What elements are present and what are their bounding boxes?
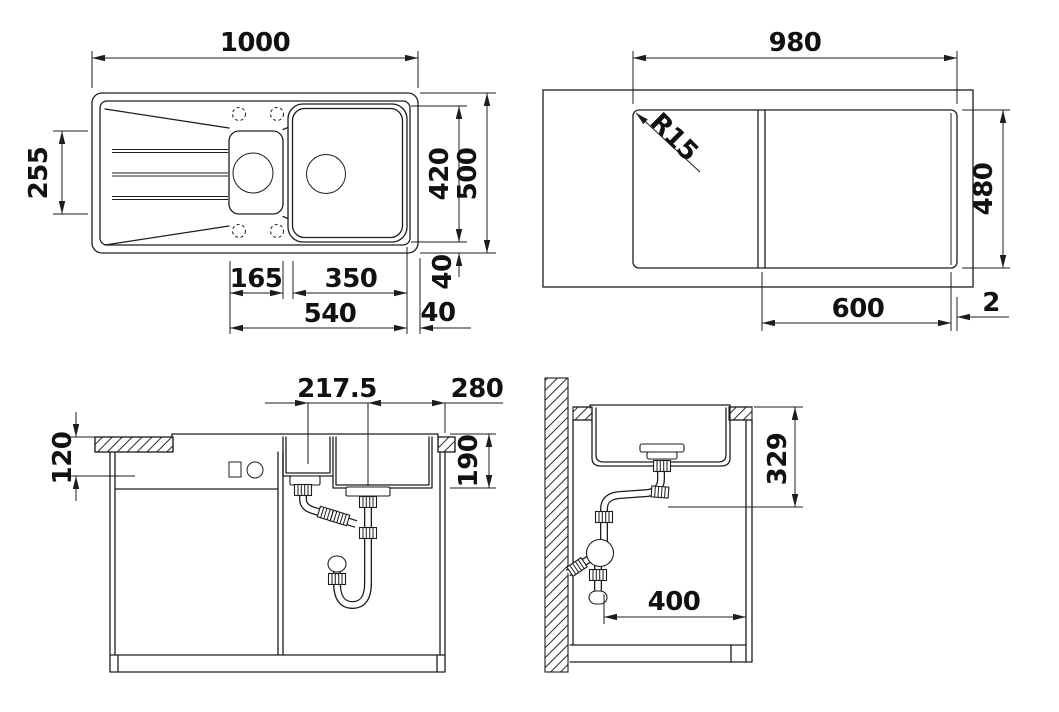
cabinet-switch-symbol bbox=[229, 462, 241, 477]
dim-label-480: 480 bbox=[969, 163, 999, 216]
dim-label-500: 500 bbox=[453, 148, 483, 201]
half-bowl-drain bbox=[233, 153, 273, 193]
strainer-flange bbox=[640, 444, 684, 452]
dim-label-255: 255 bbox=[24, 147, 54, 200]
trap-cap bbox=[328, 556, 346, 572]
sink-technical-drawing: 1000 255 420 500 40 165 350 540 40 bbox=[0, 0, 1059, 712]
cutout-divider bbox=[758, 110, 765, 268]
front-section-view: 217.5 280 120 190 bbox=[48, 374, 503, 672]
top-view-dimensions: 1000 255 420 500 40 165 350 540 40 bbox=[24, 28, 496, 334]
side-plumbing bbox=[567, 444, 684, 604]
dim-label-165: 165 bbox=[230, 264, 283, 294]
dim-label-540: 540 bbox=[304, 299, 357, 329]
countertop-side bbox=[573, 405, 752, 420]
dim-label-600: 600 bbox=[832, 294, 885, 324]
front-plumbing bbox=[290, 476, 390, 605]
strainer-body bbox=[647, 452, 677, 459]
drainboard-grooves bbox=[112, 150, 228, 200]
side-dimensions: 329 400 bbox=[604, 407, 803, 624]
side-section-view: 329 400 bbox=[545, 378, 803, 672]
cabinet-socket-symbol bbox=[247, 462, 263, 478]
half-bowl-strainer bbox=[290, 476, 320, 485]
technical-drawing-page: 1000 255 420 500 40 165 350 540 40 bbox=[0, 0, 1059, 712]
main-bowl-strainer bbox=[346, 487, 390, 496]
dim-label-280: 280 bbox=[451, 374, 504, 404]
dim-label-1000: 1000 bbox=[220, 28, 290, 58]
dim-label-420: 420 bbox=[425, 148, 455, 201]
dim-label-217-5: 217.5 bbox=[297, 374, 377, 404]
dim-label-400: 400 bbox=[648, 587, 701, 617]
dim-label-350: 350 bbox=[325, 264, 378, 294]
dim-label-r15: R15 bbox=[644, 107, 704, 167]
dim-label-329: 329 bbox=[763, 433, 793, 486]
main-bowl-drain bbox=[307, 155, 346, 194]
dim-label-980: 980 bbox=[769, 28, 822, 58]
cutout-dimensions: 980 R15 480 600 2 bbox=[633, 28, 1010, 331]
dim-label-40-right: 40 bbox=[420, 298, 455, 328]
drainboard bbox=[105, 109, 288, 245]
dim-label-120: 120 bbox=[48, 432, 78, 485]
main-bowl-inner bbox=[293, 109, 403, 238]
top-view: 1000 255 420 500 40 165 350 540 40 bbox=[24, 28, 496, 334]
dim-label-40-rim: 40 bbox=[428, 254, 458, 289]
dim-label-190: 190 bbox=[454, 435, 484, 488]
wall-section bbox=[545, 378, 568, 672]
dim-label-2: 2 bbox=[982, 288, 1000, 318]
cutout-view: 980 R15 480 600 2 bbox=[543, 28, 1010, 331]
tap-holes bbox=[233, 108, 284, 238]
trap-body bbox=[587, 540, 614, 567]
main-bowl bbox=[288, 104, 407, 242]
countertop-front bbox=[95, 434, 455, 452]
half-bowl bbox=[229, 131, 283, 214]
